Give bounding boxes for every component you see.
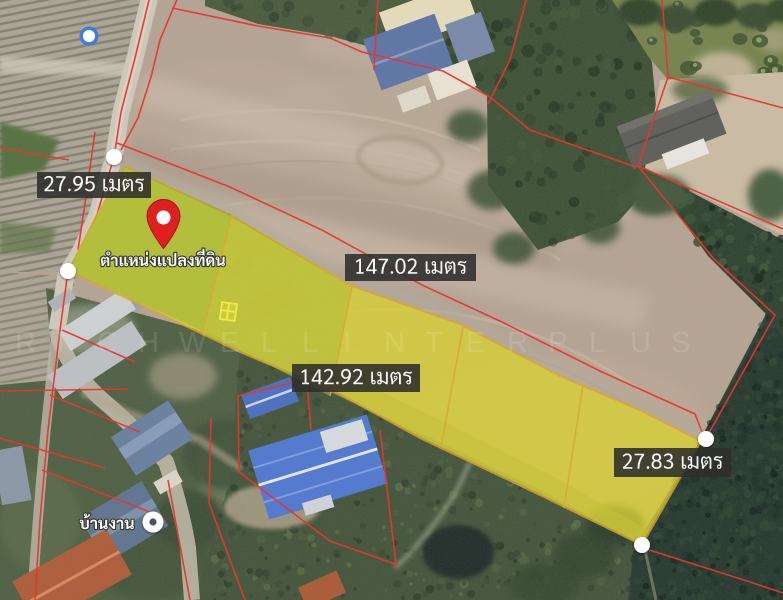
svg-text:C: C (97, 327, 118, 359)
svg-text:P: P (548, 327, 567, 359)
svg-text:L: L (302, 327, 318, 359)
svg-text:E: E (466, 327, 485, 359)
svg-text:W: W (179, 327, 207, 359)
svg-text:R: R (15, 327, 36, 359)
svg-text:I: I (343, 327, 351, 359)
svg-text:R: R (507, 327, 528, 359)
svg-text:L: L (589, 327, 605, 359)
svg-text:T: T (425, 327, 443, 359)
svg-text:H: H (138, 327, 159, 359)
svg-text:N: N (384, 327, 405, 359)
svg-text:L: L (261, 327, 277, 359)
svg-text:U: U (630, 327, 651, 359)
svg-text:E: E (220, 327, 239, 359)
svg-text:I: I (56, 327, 64, 359)
svg-text:S: S (671, 327, 690, 359)
